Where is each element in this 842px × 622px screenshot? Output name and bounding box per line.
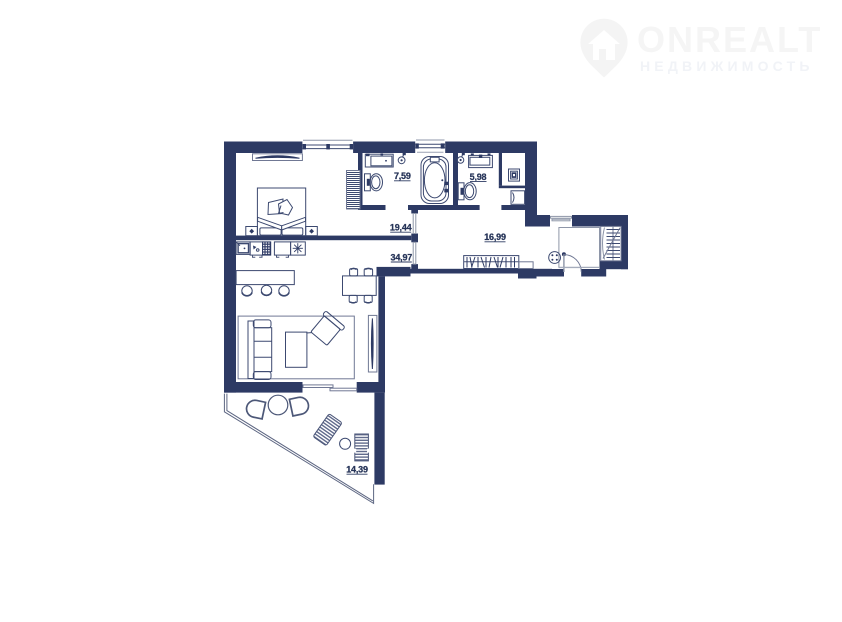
svg-text:34,97: 34,97 (391, 252, 413, 262)
svg-text:16,99: 16,99 (484, 232, 506, 242)
svg-text:19,44: 19,44 (390, 223, 412, 233)
svg-text:НЕДВИЖИМОСТЬ: НЕДВИЖИМОСТЬ (640, 58, 814, 74)
svg-text:ONREALT: ONREALT (637, 19, 822, 60)
svg-text:7,59: 7,59 (394, 171, 411, 181)
svg-text:14,39: 14,39 (346, 465, 368, 475)
svg-text:5,98: 5,98 (470, 172, 487, 182)
